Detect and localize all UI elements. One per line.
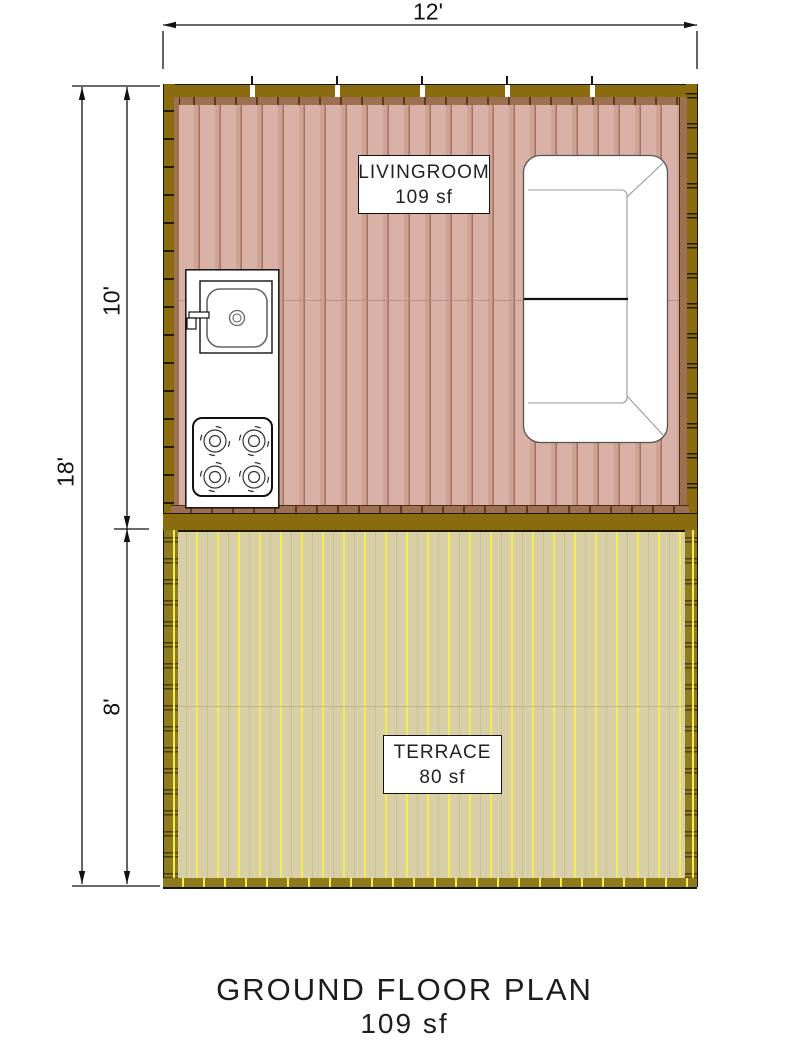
livingroom-area: 109 sf [395,186,453,210]
terrace-name: TERRACE [394,740,492,766]
wall-joint-tick [251,76,253,84]
wall-joint-tick [421,76,423,84]
wall-right [686,84,698,530]
stove-icon [193,418,272,496]
kitchen-counter [185,269,280,509]
livingroom-name: LIVINGROOM [358,160,489,186]
terrace-area: 80 sf [419,766,465,790]
dimension-depth-label: 18' [53,457,80,487]
wall-joint-tick [336,76,338,84]
terrace-label: TERRACE 80 sf [383,735,502,794]
livingroom-label: LIVINGROOM 109 sf [358,155,490,214]
terrace-stripe-right [692,530,694,887]
terrace-frame-bottom [163,878,697,889]
trim-band-right [679,97,687,513]
plan-title: GROUND FLOOR PLAN [0,972,809,1007]
sofa-icon [518,150,673,448]
wall-top [163,84,697,98]
sink-icon [187,281,272,353]
dimension-terrace-depth-label: 8' [99,698,126,715]
dimension-livingroom-depth-label: 10' [99,286,126,316]
wall-joint-tick [506,76,508,84]
floor-plan-canvas: 12' 18' 10' 8' [0,0,809,1053]
wall-joint-tick [591,76,593,84]
title-block: GROUND FLOOR PLAN 109 sf [0,972,809,1040]
terrace-frame-left [163,530,178,887]
terrace-board-joint [177,706,685,707]
wall-middle [163,513,697,532]
terrace-floor [177,532,685,878]
dimension-width-label: 12' [413,0,443,26]
terrace-stripe-left [173,530,175,887]
plan-title-area: 109 sf [0,1007,809,1040]
